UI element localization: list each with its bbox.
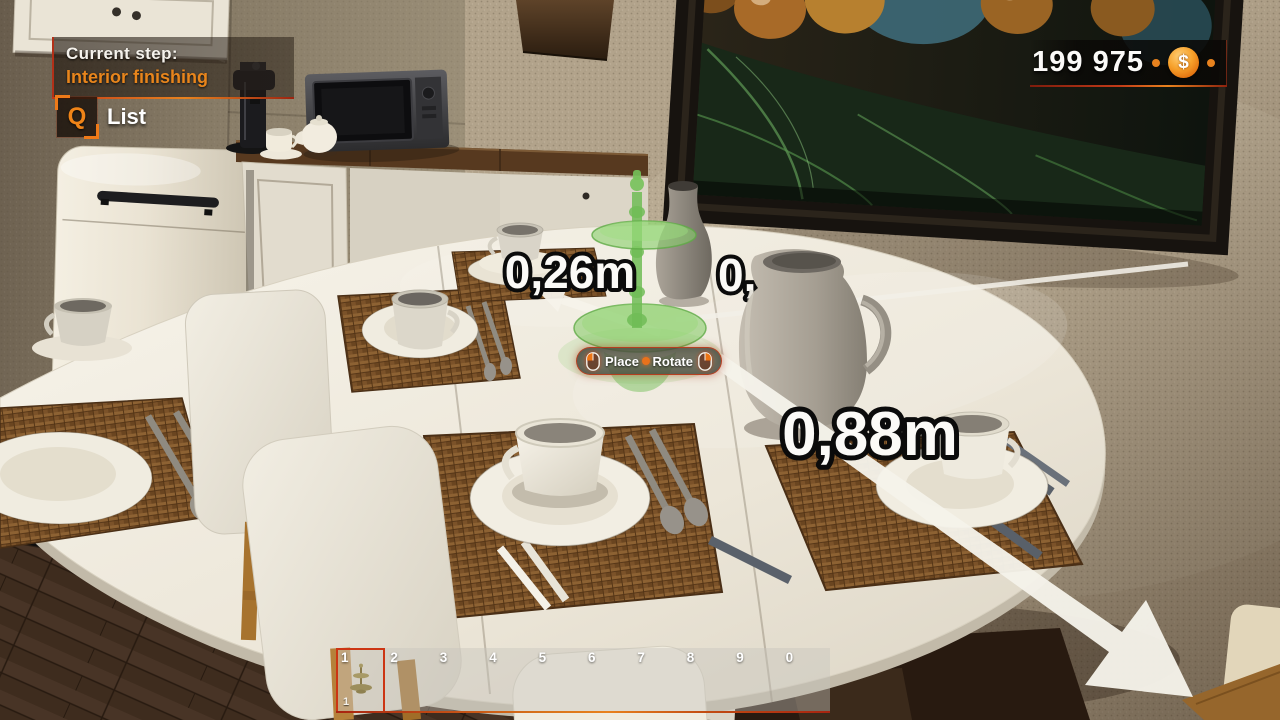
- current-step-panel: Current step: Interior finishing: [52, 37, 294, 97]
- mouse-right-click-icon: [698, 352, 712, 371]
- slot-number: 0: [786, 650, 794, 665]
- coin-dot-right-icon: [1207, 59, 1215, 67]
- mouse-left-click-icon: [586, 352, 600, 371]
- q-key-label: Q: [68, 103, 87, 131]
- hotbar-slot-5[interactable]: 5: [534, 648, 583, 713]
- placement-tooltip: Place Rotate: [576, 347, 722, 375]
- coin-dot-left-icon: [1152, 59, 1160, 67]
- slot-number: 2: [390, 650, 398, 665]
- slot-number: 7: [637, 650, 645, 665]
- rotate-label: Rotate: [653, 354, 693, 369]
- money-panel: 199 975 $: [1030, 40, 1227, 85]
- place-action[interactable]: Place: [586, 352, 639, 371]
- cabinet-knob: [583, 193, 590, 200]
- measure-label-left: 0,26m: [505, 246, 635, 298]
- dark-wall-cabinet: [516, 0, 614, 60]
- place-label: Place: [605, 354, 639, 369]
- current-step-value: Interior finishing: [66, 67, 282, 88]
- game-viewport: uu: [0, 0, 1280, 720]
- slot-number: 9: [736, 650, 744, 665]
- hotbar-slot-4[interactable]: 4: [484, 648, 533, 713]
- slot-number: 5: [539, 650, 547, 665]
- measure-label-forward: 0,88m: [782, 400, 958, 469]
- slot-number: 3: [440, 650, 448, 665]
- slot-number: 6: [588, 650, 596, 665]
- hotbar-slot-2[interactable]: 2: [385, 648, 434, 713]
- currency-symbol: $: [1178, 52, 1189, 74]
- rotate-action[interactable]: Rotate: [653, 352, 712, 371]
- hotbar-slot-7[interactable]: 7: [632, 648, 681, 713]
- cake-stand-icon: [348, 662, 374, 696]
- hotbar-slot-6[interactable]: 6: [583, 648, 632, 713]
- q-keycap[interactable]: Q: [57, 97, 97, 137]
- slot-number: 8: [687, 650, 695, 665]
- hotbar-slot-9[interactable]: 9: [731, 648, 780, 713]
- slot-quantity: 1: [343, 696, 349, 708]
- tooltip-separator-dot: [642, 357, 650, 365]
- hotbar-slot-3[interactable]: 3: [435, 648, 484, 713]
- current-step-label: Current step:: [66, 44, 282, 64]
- list-button-label: List: [107, 104, 146, 130]
- hotbar: 1 1 2 3 4 5 6 7 8 9 0: [336, 648, 830, 713]
- money-amount: 199 975: [1032, 46, 1144, 79]
- hotbar-slot-1[interactable]: 1 1: [336, 648, 385, 713]
- slot-number: 4: [489, 650, 497, 665]
- hotbar-slot-8[interactable]: 8: [682, 648, 731, 713]
- hotbar-slot-10[interactable]: 0: [781, 648, 830, 713]
- coin-icon: $: [1168, 47, 1199, 78]
- list-button[interactable]: Q List: [57, 97, 146, 137]
